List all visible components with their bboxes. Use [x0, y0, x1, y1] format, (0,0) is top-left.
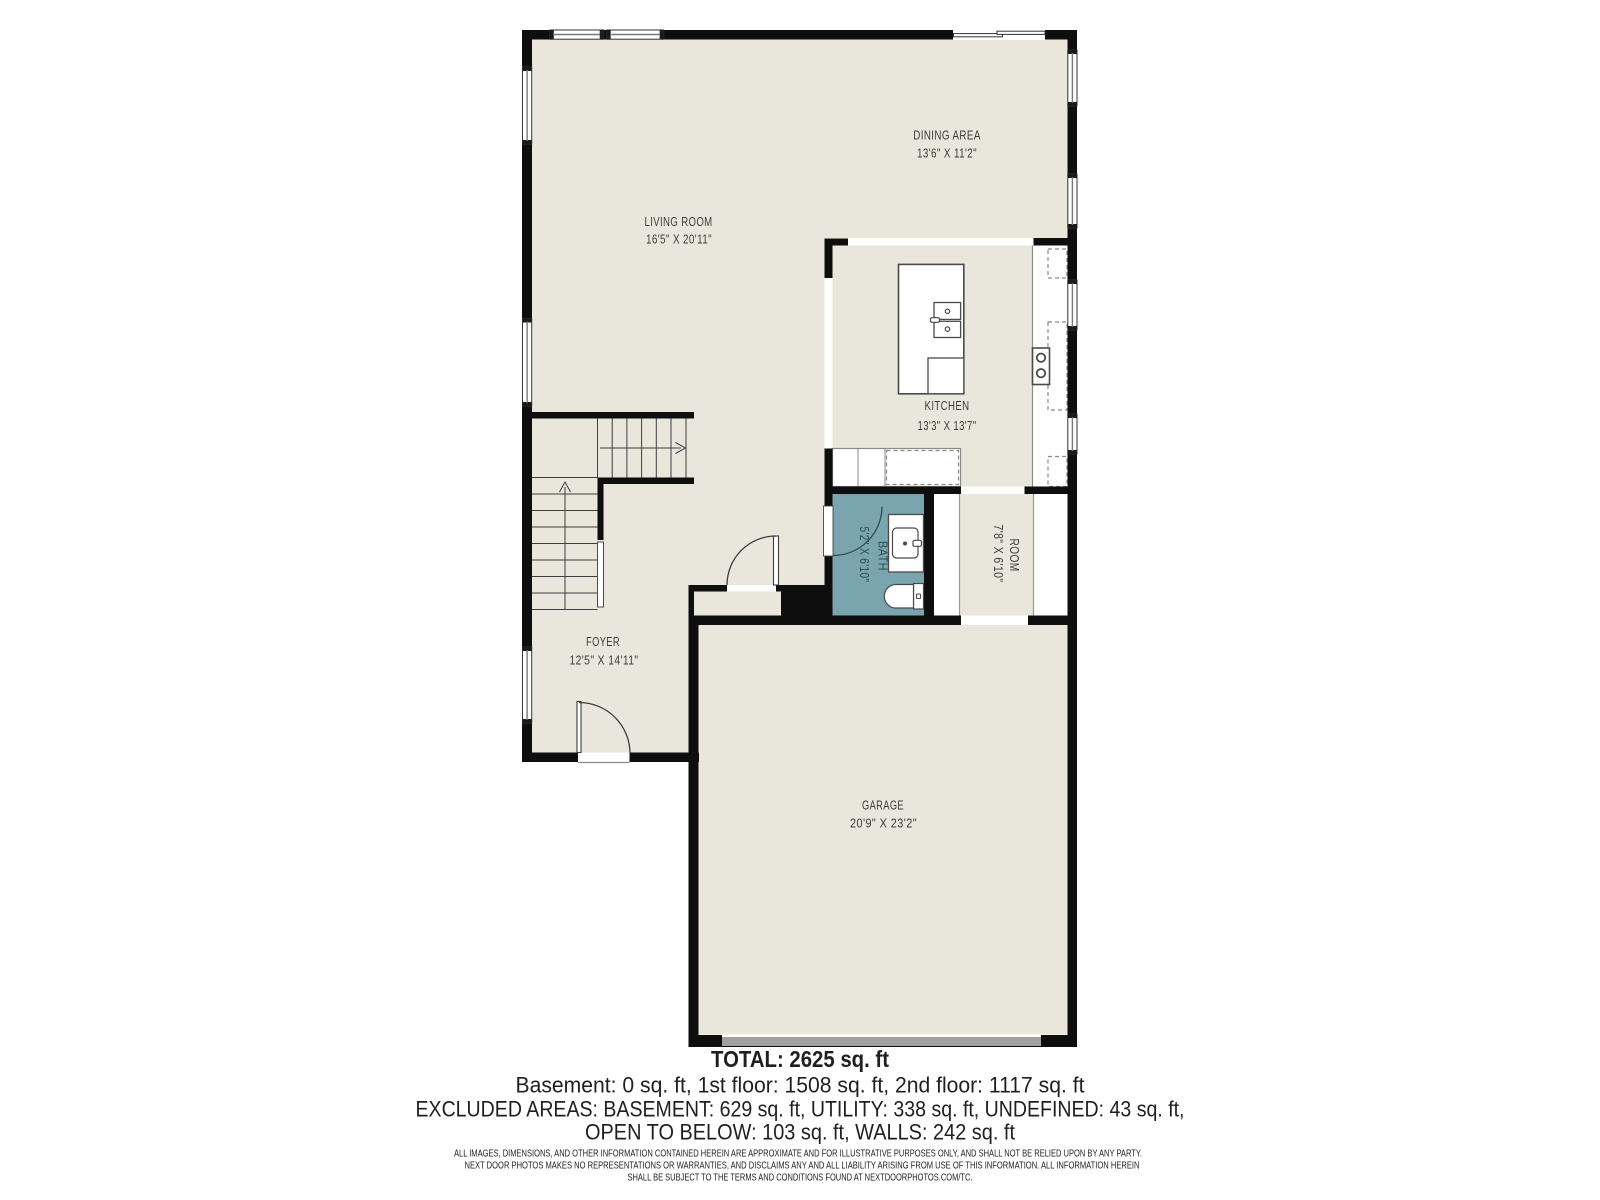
svg-text:FOYER: FOYER: [586, 635, 620, 649]
svg-text:NEXT DOOR PHOTOS MAKES NO REPR: NEXT DOOR PHOTOS MAKES NO REPRESENTATION…: [465, 1160, 1140, 1172]
svg-text:LIVING ROOM: LIVING ROOM: [645, 215, 713, 229]
svg-text:12'5" X 14'11": 12'5" X 14'11": [570, 654, 639, 668]
svg-text:7'8" X 6'10": 7'8" X 6'10": [991, 525, 1005, 583]
svg-text:20'9" X 23'2": 20'9" X 23'2": [850, 817, 917, 831]
svg-text:DINING AREA: DINING AREA: [913, 129, 981, 143]
svg-text:ALL IMAGES, DIMENSIONS, AND OT: ALL IMAGES, DIMENSIONS, AND OTHER INFORM…: [454, 1148, 1142, 1160]
svg-text:KITCHEN: KITCHEN: [925, 399, 970, 413]
svg-text:EXCLUDED AREAS: BASEMENT: 629: EXCLUDED AREAS: BASEMENT: 629 sq. ft, UT…: [416, 1097, 1185, 1122]
svg-text:5'2" X 6'10": 5'2" X 6'10": [857, 527, 871, 583]
svg-text:OPEN TO BELOW: 103 sq. ft, WAL: OPEN TO BELOW: 103 sq. ft, WALLS: 242 sq…: [585, 1120, 1016, 1145]
svg-text:16'5" X 20'11": 16'5" X 20'11": [646, 233, 712, 247]
svg-text:Basement: 0 sq. ft, 1st floor:: Basement: 0 sq. ft, 1st floor: 1508 sq. …: [516, 1073, 1086, 1098]
svg-text:GARAGE: GARAGE: [862, 799, 904, 813]
svg-text:ROOM: ROOM: [1007, 539, 1021, 572]
svg-text:13'3" X 13'7": 13'3" X 13'7": [918, 419, 977, 433]
svg-text:13'6" X 11'2": 13'6" X 11'2": [917, 147, 977, 161]
svg-text:TOTAL: 2625 sq. ft: TOTAL: 2625 sq. ft: [711, 1046, 889, 1072]
svg-text:BATH: BATH: [876, 541, 890, 571]
svg-text:SHALL BE SUBJECT TO THE TERMS: SHALL BE SUBJECT TO THE TERMS AND CONDIT…: [628, 1172, 973, 1184]
